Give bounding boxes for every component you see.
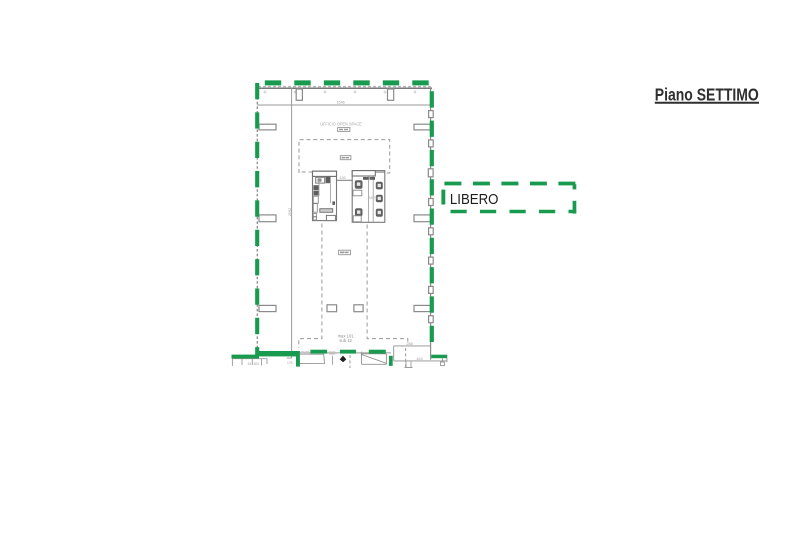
svg-text:175: 175 (287, 361, 293, 365)
svg-text:288: 288 (407, 342, 413, 346)
svg-text:130: 130 (340, 176, 346, 180)
svg-text:304: 304 (254, 362, 260, 366)
svg-text:2092: 2092 (288, 208, 292, 216)
svg-text:34: 34 (248, 362, 252, 366)
svg-text:LIBERO: LIBERO (450, 192, 499, 208)
svg-text:Piano SETTIMO: Piano SETTIMO (655, 85, 759, 105)
svg-text:1546: 1546 (337, 100, 345, 104)
svg-text:sub 12: sub 12 (339, 338, 352, 343)
svg-text:424: 424 (417, 357, 423, 361)
svg-text:UFFICIO OPEN SPACE: UFFICIO OPEN SPACE (320, 121, 362, 126)
svg-text:ANTI: ANTI (369, 196, 377, 200)
